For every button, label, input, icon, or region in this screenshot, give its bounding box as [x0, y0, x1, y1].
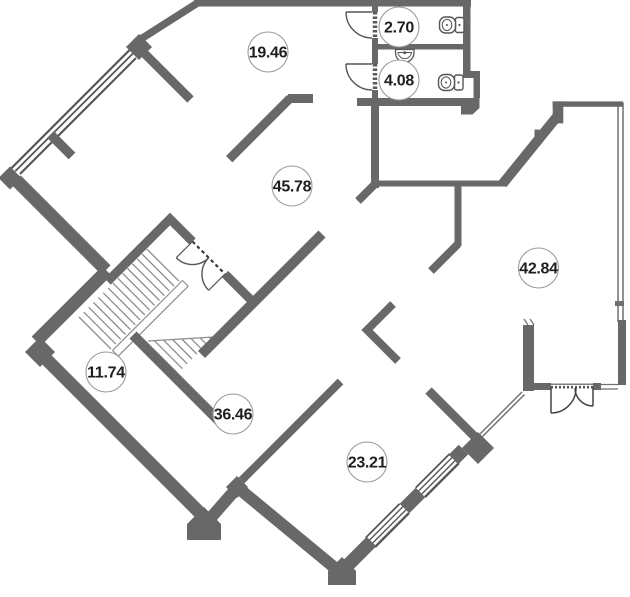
- svg-text:23.21: 23.21: [348, 454, 387, 471]
- svg-text:42.84: 42.84: [519, 260, 558, 277]
- svg-text:36.46: 36.46: [214, 406, 253, 423]
- svg-text:11.74: 11.74: [87, 364, 125, 381]
- svg-text:4.08: 4.08: [384, 72, 414, 89]
- svg-text:45.78: 45.78: [273, 178, 312, 195]
- svg-text:19.46: 19.46: [249, 44, 288, 61]
- svg-text:2.70: 2.70: [384, 19, 414, 36]
